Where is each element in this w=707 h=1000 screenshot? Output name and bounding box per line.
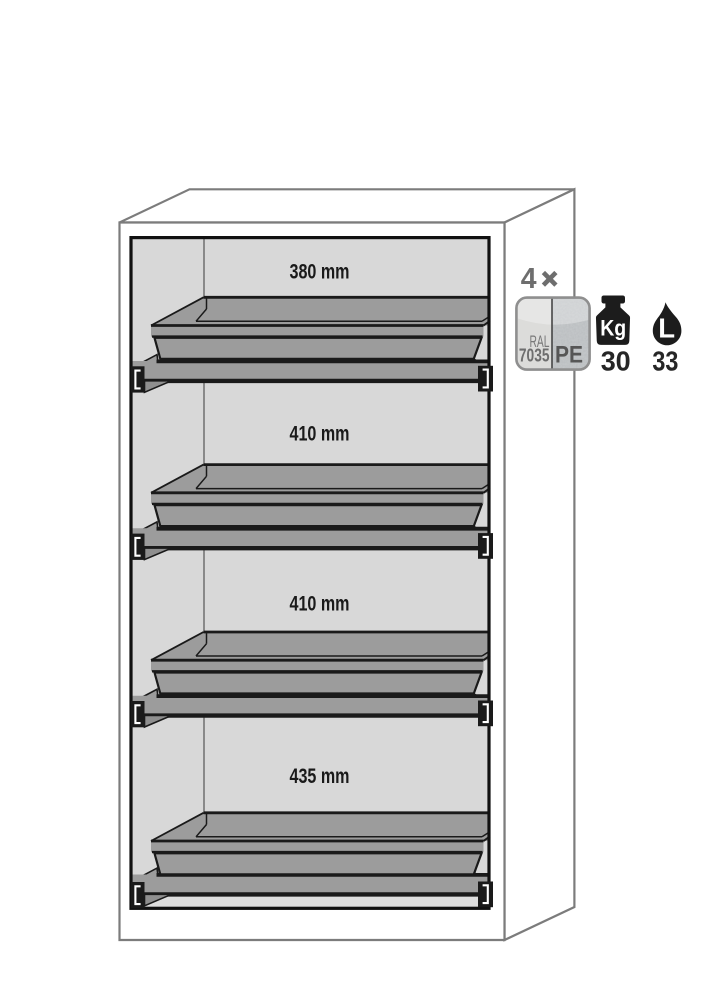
svg-text:33: 33: [652, 346, 678, 377]
svg-text:L: L: [658, 313, 675, 344]
svg-text:410 mm: 410 mm: [290, 422, 350, 445]
svg-text:380 mm: 380 mm: [290, 261, 350, 284]
svg-text:PE: PE: [555, 341, 583, 368]
svg-text:435 mm: 435 mm: [290, 765, 350, 788]
svg-text:7035: 7035: [519, 345, 550, 365]
svg-text:Kg: Kg: [600, 316, 626, 341]
svg-text:30: 30: [601, 346, 631, 377]
svg-text:410 mm: 410 mm: [290, 593, 350, 616]
svg-text:4: 4: [521, 263, 537, 295]
